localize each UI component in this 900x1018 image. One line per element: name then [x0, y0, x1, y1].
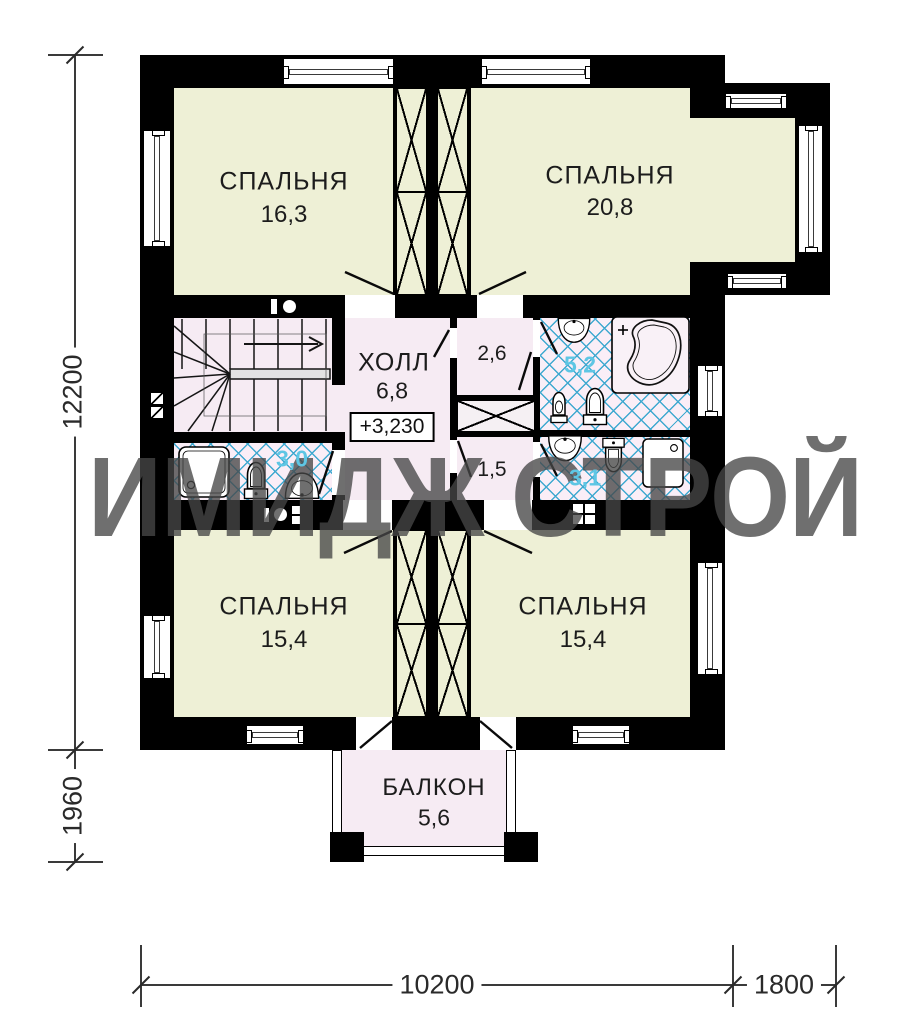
- window-pane: [154, 621, 160, 673]
- duct-box: [457, 400, 535, 432]
- floor-bedroom-top-right: [471, 88, 690, 295]
- door-opening: [450, 328, 457, 358]
- balcony-railing-bottom: [362, 846, 508, 856]
- vent-cell: [396, 624, 427, 718]
- dimension-label-balcony-depth: 1960: [58, 769, 89, 843]
- floor-stairs-opening: [332, 385, 345, 432]
- window-top-1: [283, 58, 394, 85]
- extension-line: [140, 945, 142, 1007]
- window-pane: [487, 69, 585, 75]
- watermark: ИМИДЖ СТРОЙ: [88, 436, 858, 566]
- door-opening: [345, 295, 395, 318]
- door-opening: [477, 295, 523, 318]
- room-area: 3,1: [569, 465, 601, 492]
- extension-line: [732, 945, 734, 1007]
- room-label: СПАЛЬНЯ: [219, 168, 348, 197]
- door-opening: [533, 320, 540, 357]
- elevation-mark: +3,230: [350, 412, 435, 442]
- floor-bay: [690, 118, 795, 262]
- room-label: СПАЛЬНЯ: [518, 593, 647, 622]
- room-label: БАЛКОН: [382, 774, 485, 802]
- dimension-label-width: 10200: [392, 970, 481, 1001]
- vent-shaft-top-right: [437, 88, 468, 295]
- window-pane: [707, 371, 713, 411]
- dimension-label-bay-width: 1800: [747, 970, 821, 1001]
- vent-cell: [396, 192, 427, 296]
- window-pane: [707, 568, 713, 669]
- window-bay-right: [798, 125, 823, 253]
- room-area: 15,4: [261, 626, 308, 654]
- vent-shaft-top-left: [396, 88, 427, 295]
- window-right-bath: [697, 365, 723, 417]
- window-bay-bottom: [727, 273, 787, 289]
- staircase: [174, 318, 332, 432]
- window-pane: [578, 732, 624, 738]
- window-bottom-1: [246, 725, 304, 745]
- balcony-post: [330, 832, 364, 862]
- room-area: 20,8: [587, 194, 634, 222]
- window-bottom-2: [572, 725, 630, 745]
- window-pane: [733, 278, 781, 284]
- dimension-label-height: 12200: [58, 347, 89, 436]
- room-label: СПАЛЬНЯ: [545, 162, 674, 191]
- bidet-icon: [549, 388, 569, 426]
- room-area: 15,4: [560, 626, 607, 654]
- room-area: 2,6: [477, 342, 506, 366]
- window-pane: [289, 69, 388, 75]
- toilet-icon: [582, 386, 608, 426]
- room-label: ХОЛЛ: [358, 349, 430, 378]
- electric-panel-icon: [148, 390, 166, 420]
- sink-icon: [556, 316, 592, 346]
- room-area: 5,6: [418, 805, 450, 832]
- room-area: 1,5: [477, 458, 506, 482]
- bathtub-icon: [611, 316, 690, 394]
- vent-cell: [437, 88, 468, 192]
- window-pane: [808, 131, 814, 247]
- window-pane: [154, 136, 160, 241]
- balcony-door-opening: [356, 717, 392, 750]
- vent-cell: [396, 88, 427, 192]
- window-pane: [252, 732, 298, 738]
- extension-line: [835, 945, 837, 1007]
- window-bay-top: [725, 93, 787, 109]
- room-area: 16,3: [261, 201, 308, 229]
- floor-plan: ИМИДЖ СТРОЙ СПАЛЬНЯ 16,3 СПАЛЬНЯ 20,8 ХО…: [0, 0, 900, 1018]
- window-right-bedroom: [697, 562, 723, 675]
- room-area: 3,0: [276, 446, 308, 473]
- window-left-1: [143, 130, 171, 247]
- balcony-post: [504, 832, 538, 862]
- room-label: СПАЛЬНЯ: [219, 593, 348, 622]
- room-area: 6,8: [376, 378, 408, 405]
- vent-cell: [437, 624, 468, 718]
- boiler-icon: [263, 296, 305, 317]
- window-top-2: [481, 58, 591, 85]
- balcony-door-opening: [480, 717, 516, 750]
- window-left-2: [143, 615, 171, 679]
- room-area: 5,2: [564, 352, 596, 379]
- window-pane: [731, 98, 781, 104]
- vent-cell: [437, 192, 468, 296]
